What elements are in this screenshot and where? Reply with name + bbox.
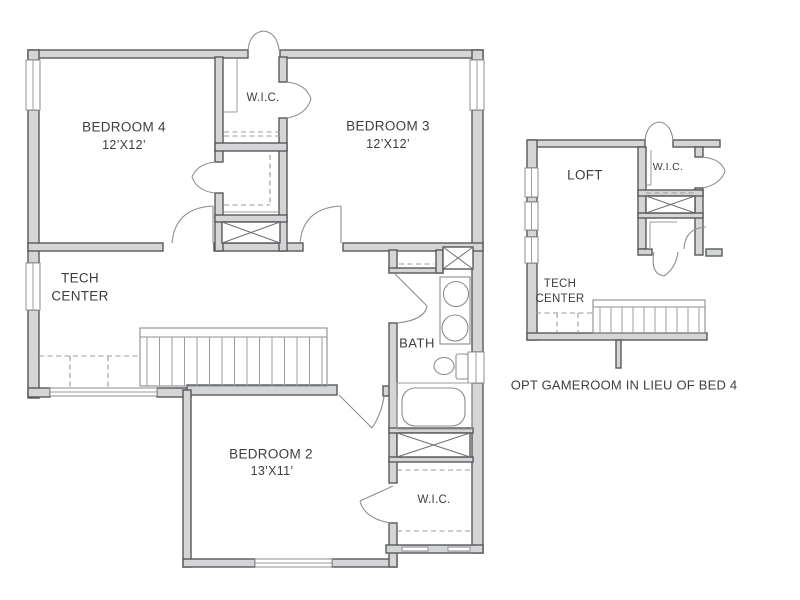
label-bedroom3: BEDROOM 3 — [346, 119, 430, 134]
linen-box-center-column — [222, 222, 280, 243]
door-wic-side — [287, 82, 311, 118]
linen-box-bath-top — [443, 247, 473, 269]
vanity-double-sink — [440, 277, 470, 344]
label-tech-center-option-1: TECH — [544, 278, 577, 290]
windows-layer-option — [525, 168, 538, 263]
door-wic-top — [248, 31, 279, 50]
label-bedroom2-dims: 13’X11’ — [251, 464, 294, 478]
door-bedroom4 — [172, 206, 213, 243]
window-loft-3 — [525, 237, 538, 263]
option-plan-caption: OPT GAMEROOM IN LIEU OF BED 4 — [511, 378, 738, 393]
toilet — [434, 354, 468, 379]
door-center-closet — [192, 162, 215, 193]
window-tech-center-left — [26, 263, 40, 310]
window-tech-center-bottom — [50, 388, 157, 396]
window-loft-1 — [525, 168, 538, 197]
label-bedroom4-dims: 12’X12’ — [102, 138, 146, 152]
walls-layer-option — [527, 140, 722, 368]
stairs-main — [140, 328, 327, 386]
window-bedroom3 — [470, 60, 484, 110]
label-tech-center-1: TECH — [61, 271, 99, 286]
floor-plan-drawing — [0, 0, 800, 600]
tech-center-desk — [39, 356, 141, 387]
floor-plan: BEDROOM 4 12’X12’ BEDROOM 3 12’X12’ BEDR… — [0, 0, 800, 600]
bathtub — [397, 383, 472, 429]
label-wic-top: W.I.C. — [246, 92, 279, 104]
door-wic-side-option — [703, 157, 725, 188]
windows-layer-main — [26, 60, 484, 567]
label-bath: BATH — [399, 336, 435, 351]
linen-box-under-tub — [397, 433, 470, 457]
label-wic-bottom: W.I.C. — [417, 494, 450, 506]
window-bedroom4 — [26, 60, 40, 110]
tech-center-desk-option — [536, 313, 593, 332]
door-bath — [394, 273, 427, 323]
label-bedroom4: BEDROOM 4 — [82, 120, 166, 135]
door-bedroom3 — [300, 206, 341, 243]
label-tech-center-option-2: CENTER — [535, 293, 584, 305]
label-bedroom2: BEDROOM 2 — [229, 447, 313, 462]
label-wic-option: W.I.C. — [653, 161, 683, 173]
window-loft-2 — [525, 202, 538, 230]
door-bedroom2 — [339, 395, 384, 428]
door-closet-option — [653, 252, 678, 276]
window-bedroom2 — [255, 559, 332, 567]
door-wic-top-option — [645, 122, 673, 140]
label-tech-center-2: CENTER — [51, 289, 108, 304]
label-loft: LOFT — [567, 168, 603, 183]
door-wic-bottom — [360, 486, 393, 523]
window-bath — [468, 352, 484, 383]
stairs-option — [593, 300, 705, 333]
linen-box-option — [646, 196, 695, 213]
bath-fixtures — [397, 277, 472, 429]
label-bedroom3-dims: 12’X12’ — [366, 137, 410, 151]
